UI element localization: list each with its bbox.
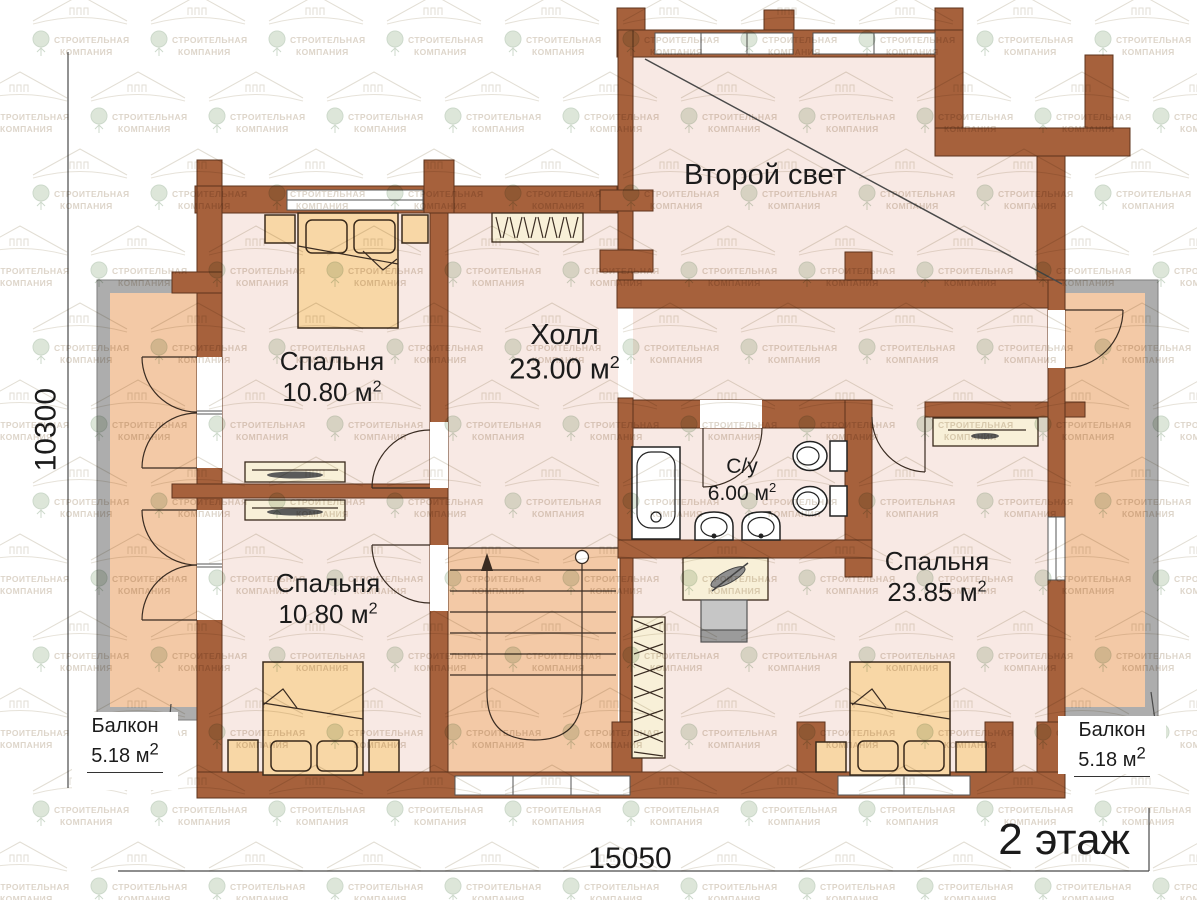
area-sup: 2 <box>1136 743 1145 762</box>
room-label-bedroom-bottom-left: Спальня 10.80 м2 <box>228 568 428 629</box>
balcony-right-label: Балкон 5.18 м2 <box>1058 716 1166 774</box>
bed-symbol <box>850 662 950 775</box>
nightstand-symbol <box>265 215 295 243</box>
balcony-label-text: Балкон 5.18 м2 <box>87 712 163 773</box>
area-sup: 2 <box>149 739 158 758</box>
room-area: 10.80 м2 <box>232 377 432 408</box>
dresser-symbol <box>245 500 345 520</box>
door-opening <box>197 357 222 468</box>
room-area: 5.18 м2 <box>91 745 159 767</box>
area-value: 6.00 м <box>708 482 769 505</box>
room-name: Балкон <box>91 714 159 739</box>
floor-title-text: 2 этаж <box>998 815 1130 864</box>
room-label-bedroom-top-left: Спальня 10.80 м2 <box>232 346 432 407</box>
door-opening <box>430 545 448 611</box>
balcony-label-text: Балкон 5.18 м2 <box>1074 716 1150 777</box>
area-sup: 2 <box>369 599 378 617</box>
room-area: 5.18 м2 <box>1078 749 1146 771</box>
floor-plan-drawing <box>0 0 1197 900</box>
area-value: 10.80 м <box>282 377 372 407</box>
sink-symbol <box>695 512 733 540</box>
bed-symbol <box>263 662 363 775</box>
window <box>455 776 630 795</box>
room-label-bedroom-right: Спальня 23.85 м2 <box>837 546 1037 607</box>
balcony-right-floor <box>1065 293 1145 707</box>
room-name: Спальня <box>232 346 432 377</box>
dimension-label-height: 10300 <box>28 350 63 510</box>
room-name: Спальня <box>837 546 1037 577</box>
door-opening <box>197 510 222 620</box>
room-label-bathroom: С/у 6.00 м2 <box>662 455 822 507</box>
ladder-symbol <box>632 617 665 758</box>
dimension-label-width: 15050 <box>540 841 720 876</box>
area-sup: 2 <box>373 377 382 395</box>
floor-title: 2 этаж <box>930 814 1130 866</box>
nightstand-symbol <box>369 740 399 772</box>
nightstand-symbol <box>228 740 258 772</box>
room-name: Балкон <box>1078 718 1146 743</box>
bed-symbol <box>298 213 398 328</box>
balcony-left-floor <box>110 293 197 707</box>
area-value: 5.18 м <box>1078 749 1136 771</box>
room-area: 10.80 м2 <box>228 599 428 630</box>
desk-symbol <box>683 558 768 600</box>
room-label-second-light: Второй свет <box>640 158 890 192</box>
dimension-value: 15050 <box>588 842 671 875</box>
dimension-value: 10300 <box>29 388 62 471</box>
door-opening <box>700 400 762 428</box>
floor-plan-canvas: СТРОИТЕЛЬНАЯ КОМПАНИЯ СТРОИТЕЛЬНАЯ КОМПА… <box>0 0 1197 900</box>
room-name: С/у <box>662 455 822 480</box>
room-label-hall: Холл 23.00 м2 <box>462 318 667 387</box>
area-sup: 2 <box>610 352 620 372</box>
room-name: Холл <box>462 318 667 352</box>
desk-symbol <box>933 418 1038 446</box>
area-value: 10.80 м <box>278 599 368 629</box>
area-value: 23.85 м <box>887 577 977 607</box>
nightstand-symbol <box>956 742 986 772</box>
nightstand-symbol <box>402 215 428 243</box>
wardrobe-symbol <box>492 213 583 242</box>
area-sup: 2 <box>978 577 987 595</box>
door-opening <box>430 422 448 488</box>
door-opening <box>1048 310 1065 368</box>
window <box>655 33 793 54</box>
balcony-left-label: Балкон 5.18 м2 <box>72 712 178 790</box>
staircase-floor <box>448 548 618 772</box>
room-area: 6.00 м2 <box>662 480 822 507</box>
room-area: 23.00 м2 <box>462 352 667 387</box>
dresser-symbol <box>245 462 345 482</box>
area-value: 23.00 м <box>509 354 610 386</box>
area-sup: 2 <box>769 480 776 495</box>
nightstand-symbol <box>816 742 846 772</box>
chair-symbol <box>701 600 747 642</box>
sink-symbol <box>742 512 780 540</box>
room-area: 23.85 м2 <box>837 577 1037 608</box>
room-name: Спальня <box>228 568 428 599</box>
area-value: 5.18 м <box>91 745 149 767</box>
room-name: Второй свет <box>640 158 890 192</box>
